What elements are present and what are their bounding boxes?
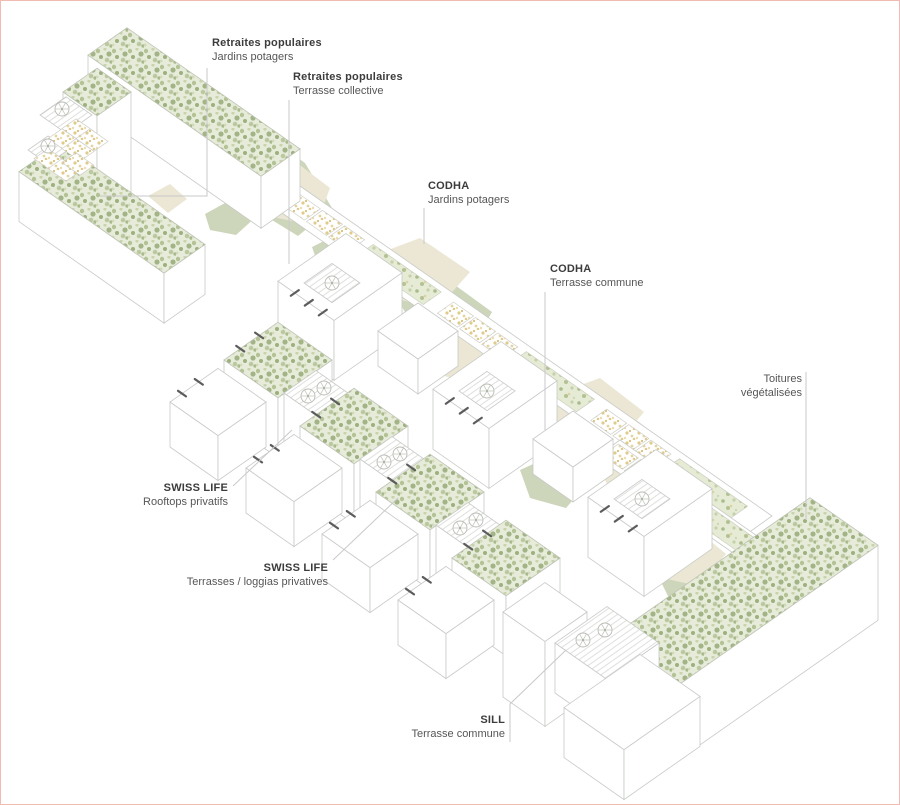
label-codha-jardins: CODHA Jardins potagers <box>428 179 509 208</box>
building-volumes <box>19 28 878 800</box>
label-swiss-terrasses: SWISS LIFE Terrasses / loggias privative… <box>128 561 328 590</box>
parasol-icon <box>41 139 55 153</box>
label-subtitle: Terrasse commune <box>550 276 644 290</box>
label-subtitle: Terrasses / loggias privatives <box>128 575 328 589</box>
parasol-icon <box>393 447 407 461</box>
label-title: Retraites populaires <box>212 36 322 50</box>
label-title: SWISS LIFE <box>48 481 228 495</box>
label-title: CODHA <box>550 262 644 276</box>
parasol-icon <box>469 513 483 527</box>
parasol-icon <box>598 623 612 637</box>
parasol-icon <box>317 381 331 395</box>
label-subtitle: Jardins potagers <box>212 50 322 64</box>
label-title: CODHA <box>428 179 509 193</box>
label-subtitle: Terrasse collective <box>293 84 403 98</box>
label-line-1: Toitures <box>652 372 802 386</box>
parasol-icon <box>301 389 315 403</box>
parasol-icon <box>55 102 69 116</box>
label-subtitle: Terrasse commune <box>355 727 505 741</box>
parasol-icon <box>377 455 391 469</box>
label-sill: SILL Terrasse commune <box>355 713 505 742</box>
label-toitures-vegetalisees: Toitures végétalisées <box>652 372 802 401</box>
label-retraites-jardins: Retraites populaires Jardins potagers <box>212 36 322 65</box>
label-title: SILL <box>355 713 505 727</box>
label-subtitle: Rooftops privatifs <box>48 495 228 509</box>
parasol-icon <box>576 633 590 647</box>
label-swiss-rooftops: SWISS LIFE Rooftops privatifs <box>48 481 228 510</box>
label-title: SWISS LIFE <box>128 561 328 575</box>
parasol-icon <box>480 384 494 398</box>
label-retraites-terrasse: Retraites populaires Terrasse collective <box>293 70 403 99</box>
label-subtitle: Jardins potagers <box>428 193 509 207</box>
parasol-icon <box>453 521 467 535</box>
label-title: Retraites populaires <box>293 70 403 84</box>
axonometric-diagram <box>0 0 900 805</box>
label-line-2: végétalisées <box>652 386 802 400</box>
label-codha-terrasse: CODHA Terrasse commune <box>550 262 644 291</box>
parasol-icon <box>635 492 649 506</box>
parasol-icon <box>325 276 339 290</box>
